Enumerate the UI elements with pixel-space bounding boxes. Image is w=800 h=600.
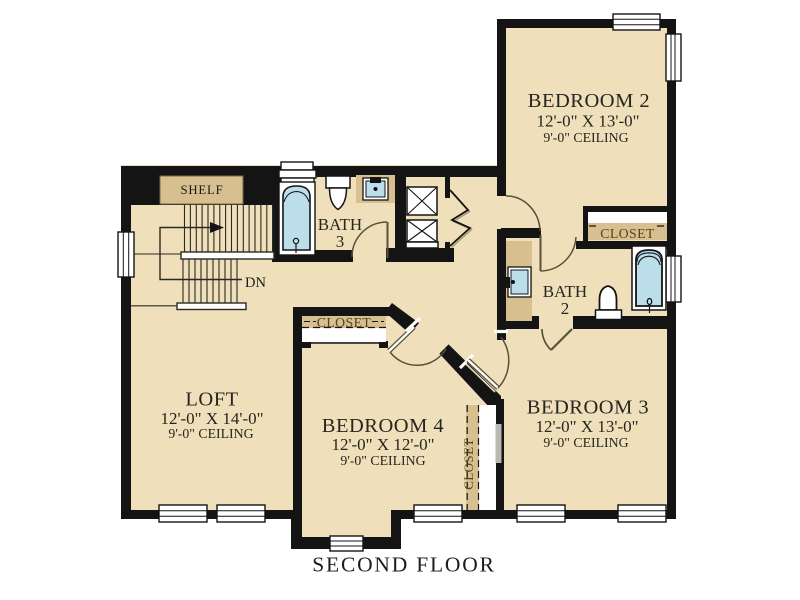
svg-text:12'-0" X 13'-0": 12'-0" X 13'-0": [535, 417, 638, 436]
svg-text:9'-0" CEILING: 9'-0" CEILING: [340, 453, 425, 468]
svg-text:SECOND FLOOR: SECOND FLOOR: [312, 553, 495, 577]
svg-text:9'-0" CEILING: 9'-0" CEILING: [543, 130, 628, 145]
svg-text:CLOSET: CLOSET: [317, 315, 372, 330]
svg-text:LOFT: LOFT: [185, 389, 238, 411]
svg-text:9'-0" CEILING: 9'-0" CEILING: [168, 426, 253, 441]
svg-text:12'-0" X 13'-0": 12'-0" X 13'-0": [536, 112, 639, 131]
svg-text:CLOSET: CLOSET: [461, 438, 476, 490]
svg-text:BEDROOM 2: BEDROOM 2: [528, 90, 650, 112]
svg-text:2: 2: [561, 299, 570, 318]
svg-text:3: 3: [336, 232, 345, 251]
svg-text:9'-0" CEILING: 9'-0" CEILING: [543, 435, 628, 450]
svg-text:BEDROOM 3: BEDROOM 3: [527, 397, 649, 419]
svg-text:DN: DN: [245, 275, 266, 291]
svg-text:12'-0" X 12'-0": 12'-0" X 12'-0": [331, 435, 434, 454]
svg-text:SHELF: SHELF: [180, 183, 223, 197]
svg-text:CLOSET: CLOSET: [600, 226, 655, 241]
svg-text:BEDROOM 4: BEDROOM 4: [322, 415, 444, 437]
